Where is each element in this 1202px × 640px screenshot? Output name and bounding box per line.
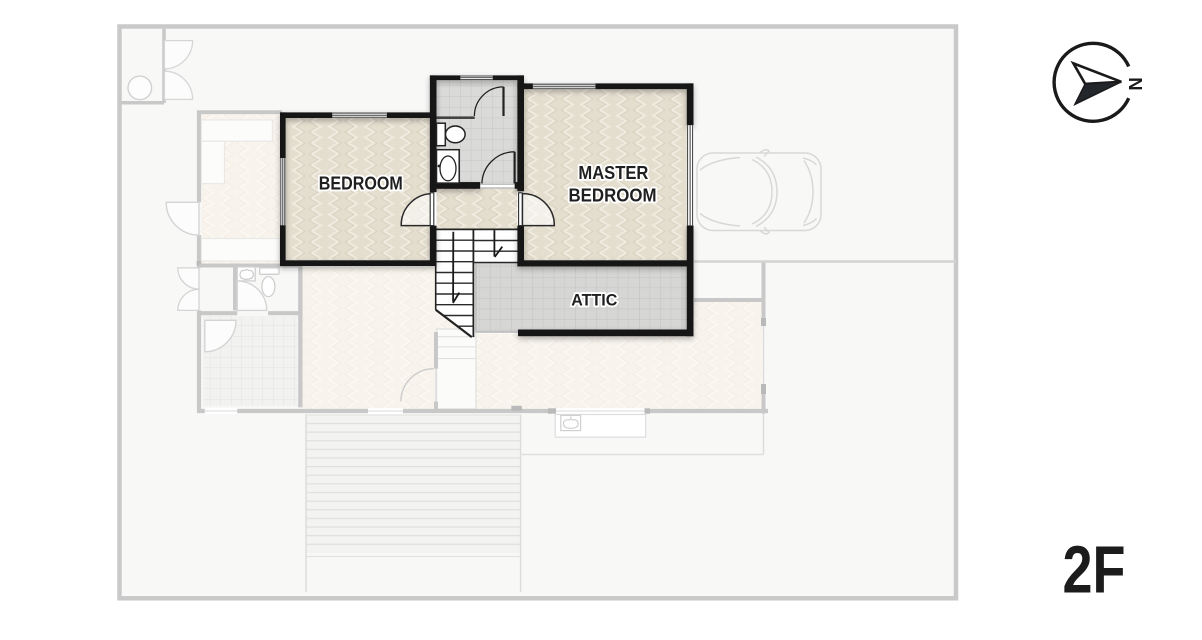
svg-text:ATTIC: ATTIC: [571, 290, 617, 309]
svg-text:N: N: [1125, 77, 1146, 90]
svg-text:BEDROOM: BEDROOM: [569, 186, 657, 206]
svg-text:2F: 2F: [1063, 534, 1126, 608]
svg-text:BEDROOM: BEDROOM: [319, 174, 403, 194]
svg-text:MASTER: MASTER: [578, 163, 648, 183]
